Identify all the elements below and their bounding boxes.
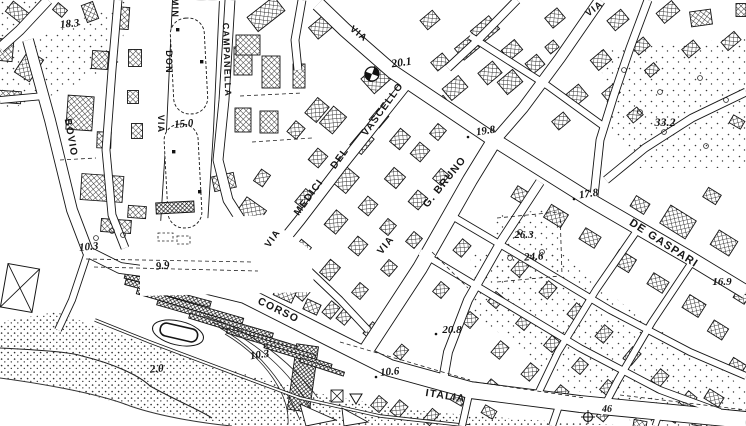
spot-height-dot	[573, 198, 576, 201]
median-marker	[176, 28, 179, 31]
median-marker	[198, 190, 201, 193]
spot-height-label: 10.6	[380, 365, 401, 379]
building	[128, 205, 147, 218]
spot-height-label: 2.0	[148, 362, 164, 375]
boulevard-median	[170, 17, 209, 115]
building	[736, 4, 746, 17]
building	[690, 9, 713, 27]
building	[262, 56, 280, 88]
spot-height-dot	[435, 333, 438, 336]
topographic-map: VIAVIAMEDICIDELVASCELLOVIAG. BRUNOCORSOI…	[0, 0, 746, 426]
spot-height-dot	[375, 376, 378, 379]
building	[129, 50, 142, 67]
crossed-shed-symbol	[0, 264, 39, 313]
map-canvas: VIAVIAMEDICIDELVASCELLOVIAG. BRUNOCORSOI…	[0, 0, 746, 426]
spot-height-label: 20.8	[441, 324, 462, 336]
dark-building	[156, 201, 195, 214]
lane	[0, 96, 44, 100]
spot-height-label: 24.6	[523, 250, 545, 263]
spot-height-label: 18.3	[59, 17, 80, 31]
building	[235, 108, 251, 132]
building	[128, 91, 139, 104]
median-marker	[200, 60, 203, 63]
building	[260, 111, 278, 133]
median-marker	[172, 150, 175, 153]
spot-height-label: 33.2	[654, 115, 676, 129]
spot-height-label: 9.9	[155, 259, 170, 272]
street-label-via-don-minzoni-word-don: DON	[164, 50, 174, 74]
building	[236, 35, 260, 55]
building	[80, 174, 124, 203]
spot-height-label: 15.0	[174, 117, 195, 131]
spot-height-label: 16.9	[712, 276, 732, 288]
building	[91, 50, 108, 69]
building	[132, 124, 143, 139]
spot-height-label: 46	[601, 404, 612, 415]
spot-height-label: 26.3	[513, 229, 534, 241]
spot-height-dot	[467, 136, 470, 139]
street-label-via-don-minzoni-word-via: VIA	[156, 115, 166, 134]
street-label-via-don-minzoni-word-min: MIN	[170, 0, 180, 18]
spot-height-label: 10.3	[79, 240, 100, 254]
